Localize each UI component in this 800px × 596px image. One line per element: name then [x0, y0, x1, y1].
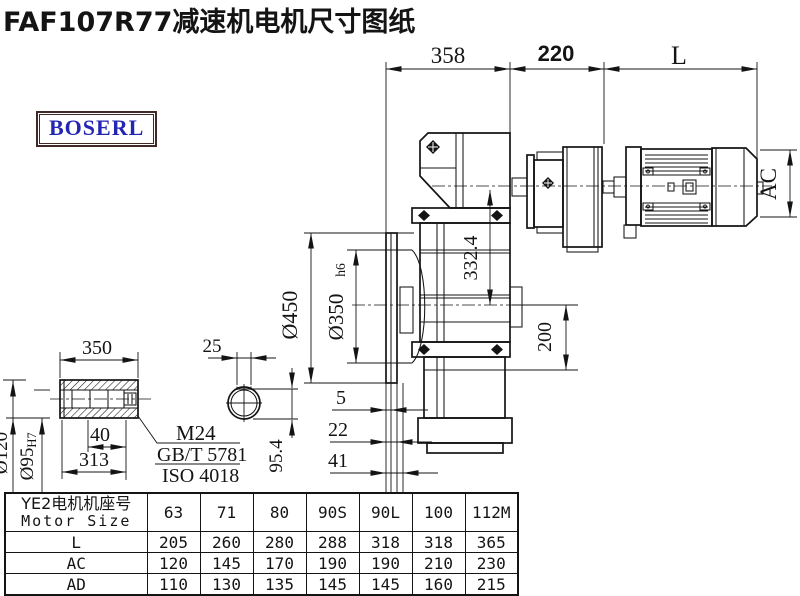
dim-AC-label: AC: [756, 168, 781, 200]
table-cell: 90L: [359, 493, 412, 532]
motor-size-table: YE2电机机座号 Motor Size 63 71 80 90S 90L 100…: [4, 492, 519, 596]
table-cell: 160: [412, 574, 465, 596]
dim-L-label: L: [671, 41, 687, 70]
dim-313-label: 313: [79, 449, 109, 471]
table-cell: 190: [306, 553, 359, 574]
input-adapter: [512, 147, 626, 252]
table-cell: 145: [200, 553, 253, 574]
table-cell: 100: [412, 493, 465, 532]
table-cell: 80: [253, 493, 306, 532]
dim-954-label: 95.4: [266, 439, 287, 473]
plug-icon: [491, 210, 503, 221]
dim-200-label: 200: [534, 322, 556, 352]
row-label: AD: [5, 574, 147, 596]
standard1-label: GB/T 5781: [157, 444, 247, 466]
table-cell: 145: [306, 574, 359, 596]
table-header-row: YE2电机机座号 Motor Size 63 71 80 90S 90L 100…: [5, 493, 518, 532]
drawing-sheet: FAF107R77减速机电机尺寸图纸 BOSERL 358 220: [0, 0, 800, 596]
row-label: AC: [5, 553, 147, 574]
table-row: L 205 260 280 288 318 318 365: [5, 532, 518, 553]
dim-25-label: 25: [203, 336, 222, 357]
dim-358-label: 358: [431, 43, 466, 68]
table-cell: 190: [359, 553, 412, 574]
table-row: AD 110 130 135 145 145 160 215: [5, 574, 518, 596]
shaft-detail: 350 40 313 Ø120 Ø95 H7 M24 GB/T: [0, 337, 247, 492]
table-cell: 110: [147, 574, 200, 596]
table-cell: 210: [412, 553, 465, 574]
dim-332-label: 332.4: [460, 236, 482, 281]
gearbox-housing: [412, 133, 522, 453]
dim-40-label: 40: [90, 424, 110, 446]
fan-cowl: [712, 148, 757, 226]
table-cell: 112M: [465, 493, 518, 532]
table-cell: 365: [465, 532, 518, 553]
table-cell: 63: [147, 493, 200, 532]
table-cell: 145: [359, 574, 412, 596]
dim-d120-label: Ø120: [0, 432, 12, 474]
table-cell: 71: [200, 493, 253, 532]
table-cell: 215: [465, 574, 518, 596]
table-cell: 90S: [306, 493, 359, 532]
table-cell: 260: [200, 532, 253, 553]
table-header-cell: YE2电机机座号 Motor Size: [5, 493, 147, 532]
table-cell: 280: [253, 532, 306, 553]
table-cell: 230: [465, 553, 518, 574]
table-cell: 130: [200, 574, 253, 596]
table-cell: 135: [253, 574, 306, 596]
flange-dimensions: Ø450 Ø350 h6 5 22 41: [277, 233, 438, 473]
table-row: AC 120 145 170 190 190 210 230: [5, 553, 518, 574]
dim-shaft-350-label: 350: [82, 337, 112, 359]
table-cell: 318: [412, 532, 465, 553]
dim-spigot-label: Ø350: [324, 294, 348, 341]
header-en: Motor Size: [6, 513, 147, 530]
table-cell: 170: [253, 553, 306, 574]
motor: [624, 147, 763, 238]
output-flange: [386, 233, 425, 492]
table-cell: 318: [359, 532, 412, 553]
dim-d95-tol-label: H7: [25, 432, 39, 447]
table-cell: 288: [306, 532, 359, 553]
table-cell: 120: [147, 553, 200, 574]
table-cell: 205: [147, 532, 200, 553]
dim-gap22-label: 22: [328, 419, 348, 441]
dim-flange-od-label: Ø450: [277, 291, 302, 340]
centerlines: [50, 186, 772, 399]
dim-spigot-tol-label: h6: [333, 263, 348, 277]
header-cn: YE2电机机座号: [6, 495, 147, 513]
motor-fins: [645, 155, 708, 223]
dim-gap5-label: 5: [336, 387, 346, 409]
row-label: L: [5, 532, 147, 553]
dim-d95-label: Ø95: [17, 448, 38, 481]
dim-gap41-label: 41: [328, 450, 348, 472]
thread-label: M24: [176, 421, 216, 445]
plug-icon: [491, 344, 503, 355]
standard2-label: ISO 4018: [162, 465, 239, 487]
dim-220-label: 220: [538, 41, 575, 66]
plug-icon: [418, 210, 430, 221]
